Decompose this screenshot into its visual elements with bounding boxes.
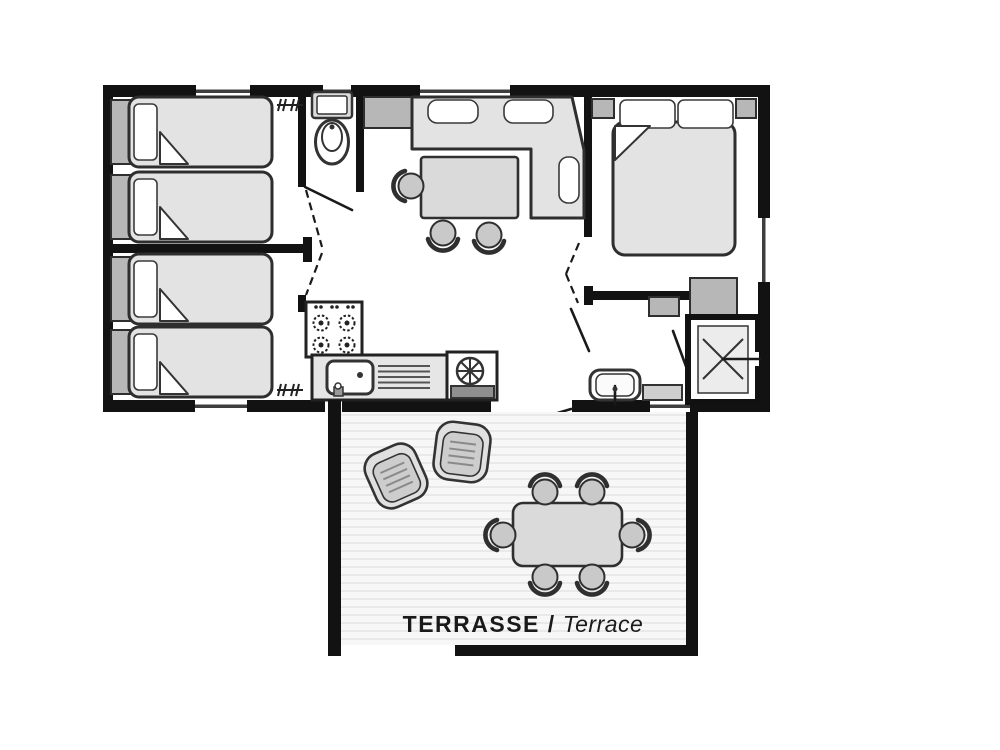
stove-burner [314, 338, 329, 353]
wall-top-segment [103, 85, 196, 97]
terrace-chair [577, 565, 607, 595]
terrace-wall-left [328, 400, 341, 656]
sofa-cushion [504, 100, 553, 123]
wall-bottom-segment [103, 400, 195, 412]
bathroom-door-swing [571, 309, 589, 351]
wc-door-swing [305, 187, 352, 210]
sofa-cushion [559, 157, 579, 203]
storage-hatch-bottom [277, 384, 303, 396]
master-door-swing [566, 243, 579, 274]
master-bedroom [592, 99, 756, 255]
window [196, 90, 250, 94]
cabinet [649, 297, 679, 316]
living-room [364, 97, 584, 253]
floor-plan-svg: TERRASSE /Terrace [0, 0, 1000, 750]
kitchen [306, 302, 497, 400]
stove-burner [340, 316, 355, 331]
floor-plan: TERRASSE /Terrace [0, 0, 1000, 750]
wall-wc-left [298, 97, 306, 187]
wall-bottom-segment [247, 400, 325, 412]
terrace-chair [530, 565, 560, 595]
sink-tap [335, 383, 341, 389]
stove-burner [340, 338, 355, 353]
single-bed-4 [111, 327, 272, 397]
sink-drain [357, 372, 363, 378]
dining-chair [428, 221, 458, 251]
bedroom-1 [111, 97, 303, 242]
appliance-spokes [458, 359, 482, 383]
terrace-label: TERRASSE /Terrace [403, 611, 644, 637]
dining-chair [474, 223, 504, 253]
stove-burner [314, 316, 329, 331]
window [420, 90, 510, 94]
window [762, 218, 766, 282]
bedroom-2 [111, 254, 303, 397]
terrace-chair [577, 474, 607, 504]
terrace-label-italic: Terrace [563, 611, 644, 637]
single-bed-1 [111, 97, 272, 167]
sofa-cushion [428, 100, 478, 123]
window [195, 405, 247, 409]
terrace-table [513, 503, 622, 566]
toilet-cistern-lid [317, 96, 347, 114]
terrace: TERRASSE /Terrace [328, 400, 698, 656]
washbasin-tap-knob [613, 387, 618, 392]
wall-end-cap [303, 237, 312, 262]
terrace-label-bold: TERRASSE / [403, 611, 556, 637]
nightstand [592, 99, 614, 118]
shower-door-swing [673, 331, 687, 369]
wall-bedroom-divider [103, 244, 305, 253]
wall-end-cap [584, 286, 593, 305]
nightstand [736, 99, 756, 118]
double-bed-pillow [620, 100, 675, 128]
wall-top-segment [351, 85, 420, 97]
tall-cabinet [364, 97, 412, 128]
terrace-wall-right [686, 412, 698, 656]
toilet-hinge [330, 125, 335, 130]
dining-chair [393, 171, 423, 201]
dining-table [421, 157, 518, 218]
terrace-chair [620, 520, 650, 550]
wall-bottom-segment [342, 400, 491, 412]
wardrobe [690, 278, 737, 317]
window [650, 405, 690, 409]
lounge-chair [432, 420, 493, 484]
wall-top-segment [510, 85, 770, 97]
bathroom-cabinet [643, 385, 682, 400]
appliance-drawer [451, 386, 494, 398]
terrace-wall-bottom [455, 645, 698, 656]
master-door-swing [566, 274, 578, 303]
wc [312, 92, 352, 164]
wall-bottom-segment [572, 400, 650, 412]
wall-wc-right [356, 97, 364, 192]
terrace-chair [485, 520, 515, 550]
single-bed-2 [111, 172, 272, 242]
wall-right-segment [758, 85, 770, 218]
double-bed-pillow [678, 100, 733, 128]
terrace-chair [530, 474, 560, 504]
single-bed-3 [111, 254, 272, 324]
